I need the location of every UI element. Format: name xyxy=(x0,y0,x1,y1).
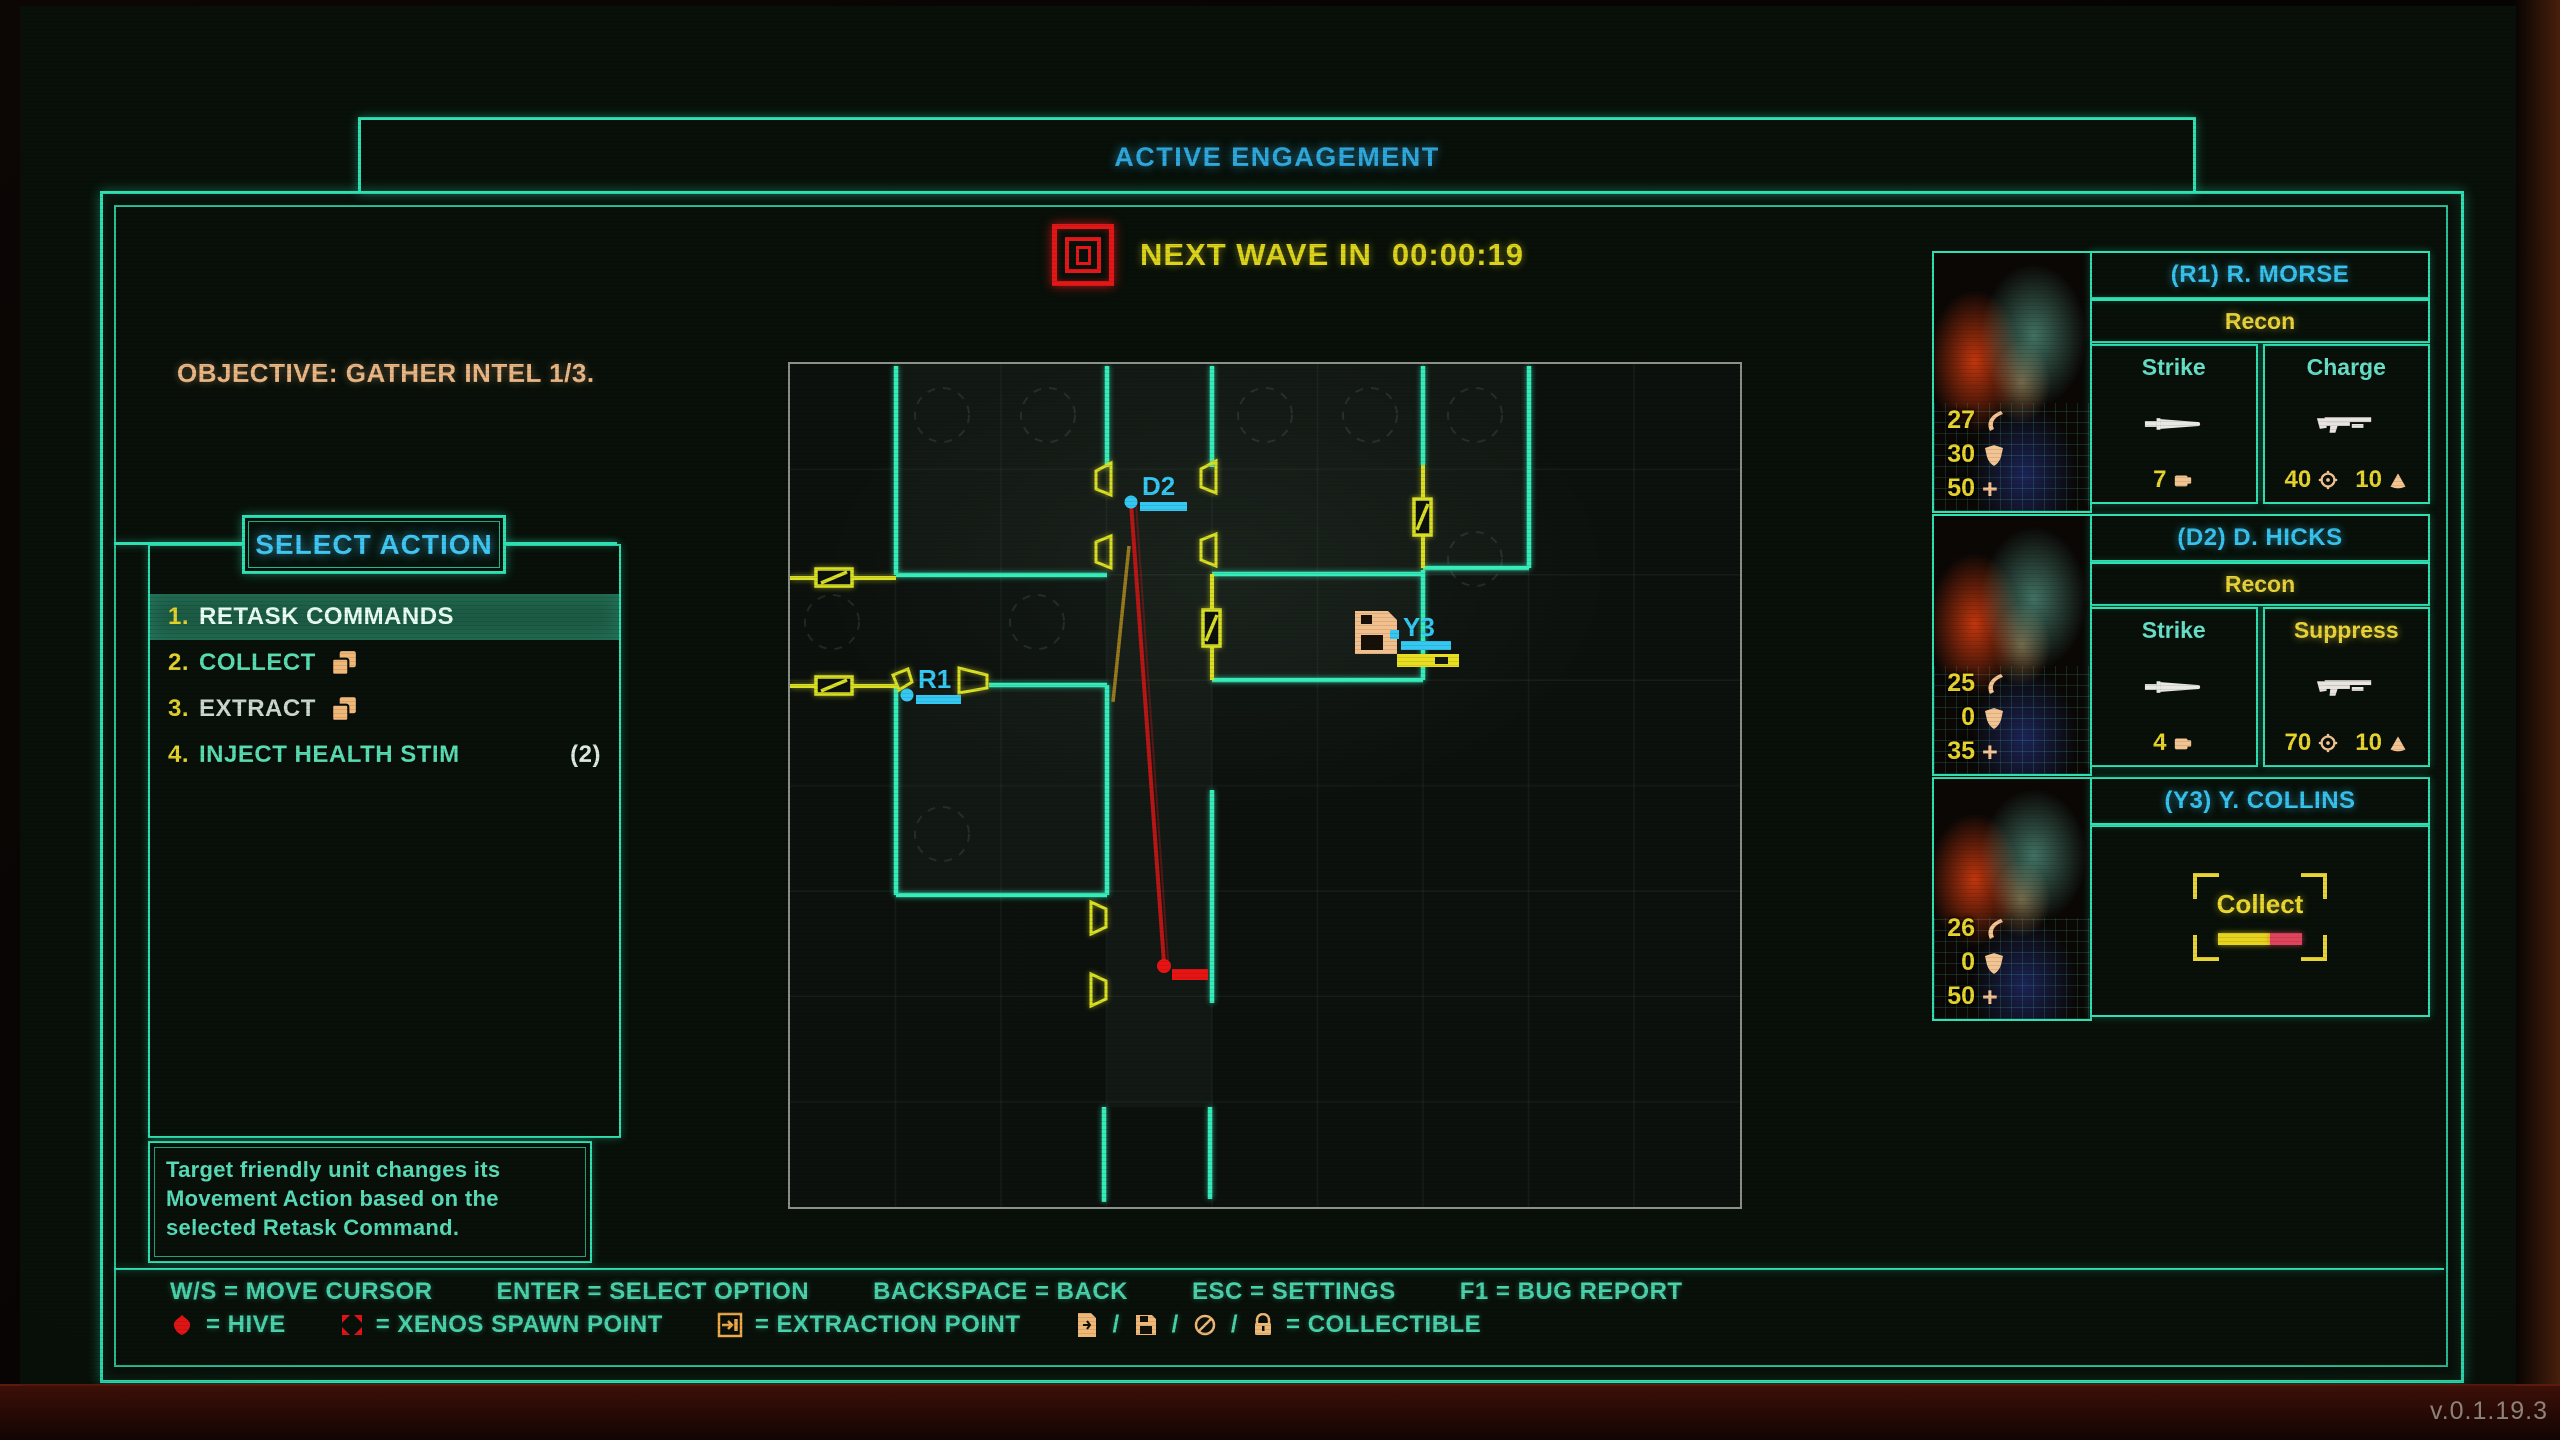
unit-portrait: 26 0 50+ xyxy=(1932,777,2092,1021)
threat-bar xyxy=(1172,969,1208,980)
stat-health: 50+ xyxy=(1939,982,2006,1011)
menu-item-number: 1. xyxy=(168,603,189,631)
melee-icon xyxy=(2172,733,2194,753)
collect-progress-bar xyxy=(2218,933,2302,945)
separator: / xyxy=(1231,1311,1238,1339)
collectible-squares-icon xyxy=(330,695,358,723)
wave-timer: 00:00:19 xyxy=(1392,237,1524,273)
unit-portrait: 25 0 35+ xyxy=(1932,514,2092,776)
action-strike[interactable]: Strike 4 xyxy=(2090,607,2258,767)
legend-xenos-spawn: = XENOS SPAWN POINT xyxy=(340,1311,663,1339)
menu-header-label: SELECT ACTION xyxy=(255,529,493,561)
accuracy-cost: 40 xyxy=(2285,466,2340,494)
shield-icon xyxy=(1982,443,2006,467)
collect-label: Collect xyxy=(2193,889,2327,920)
menu-item-inject-health-stim[interactable]: 4. INJECT HEALTH STIM (2) xyxy=(150,732,619,778)
title-tab: ACTIVE ENGAGEMENT xyxy=(358,117,2196,194)
menu-item-extract[interactable]: 3. EXTRACT xyxy=(150,686,619,732)
page-title: ACTIVE ENGAGEMENT xyxy=(1114,142,1440,173)
unit-portrait: 27 30 50+ xyxy=(1932,251,2092,513)
claw-icon xyxy=(1982,409,2006,433)
stat-armor: 30 xyxy=(1939,440,2006,469)
ammo-cost: 10 xyxy=(2355,729,2408,757)
unit-card-r1: 27 30 50+ (R1) R. MORSE Recon Strike 7 xyxy=(1932,251,2430,509)
hint-settings: ESC = SETTINGS xyxy=(1192,1278,1396,1306)
stat-armor: 0 xyxy=(1939,703,2006,732)
map-canvas: D2 R1 Y3 xyxy=(790,364,1740,1207)
hint-select-option: ENTER = SELECT OPTION xyxy=(497,1278,810,1306)
shield-icon xyxy=(1982,706,2006,730)
unit-class: Recon xyxy=(2090,562,2430,606)
unit-name: (Y3) Y. COLLINS xyxy=(2090,777,2430,825)
hint-back: BACKSPACE = BACK xyxy=(873,1278,1128,1306)
unit-name: (D2) D. HICKS xyxy=(2090,514,2430,562)
bracket-corner-icon xyxy=(2193,935,2219,961)
stat-kills: 27 xyxy=(1939,406,2006,435)
menu-item-label: EXTRACT xyxy=(199,695,316,723)
wave-alert-icon xyxy=(1052,224,1114,286)
action-suppress[interactable]: Suppress 70 10 xyxy=(2263,607,2431,767)
svg-text:Y3: Y3 xyxy=(1403,612,1435,642)
threat-marker xyxy=(1157,959,1171,973)
health-icon: + xyxy=(1982,479,1998,499)
svg-text:D2: D2 xyxy=(1142,471,1175,501)
melee-icon xyxy=(2172,470,2194,490)
accuracy-cost: 70 xyxy=(2285,729,2340,757)
keyboard-hints: W/S = MOVE CURSOR ENTER = SELECT OPTION … xyxy=(170,1278,1683,1306)
separator: / xyxy=(1113,1311,1120,1339)
unit-card-y3: 26 0 50+ (Y3) Y. COLLINS Collect xyxy=(1932,777,2430,1017)
claw-icon xyxy=(1982,672,2006,696)
action-description-text: Target friendly unit changes its Movemen… xyxy=(150,1143,590,1254)
knife-icon xyxy=(2143,412,2205,436)
menu-item-label: RETASK COMMANDS xyxy=(199,603,454,631)
map-legend: = HIVE = XENOS SPAWN POINT = EXTRACTION … xyxy=(170,1311,1481,1339)
action-strike[interactable]: Strike 7 xyxy=(2090,344,2258,504)
svg-text:R1: R1 xyxy=(918,664,951,694)
objective-text: OBJECTIVE: GATHER INTEL 1/3. xyxy=(177,358,595,389)
wave-countdown: NEXT WAVE IN 00:00:19 xyxy=(1052,224,1524,286)
unit-class: Recon xyxy=(2090,299,2430,343)
shotgun-icon xyxy=(2315,412,2377,436)
stat-kills: 25 xyxy=(1939,669,2006,698)
bracket-corner-icon xyxy=(2301,935,2327,961)
stat-health: 50+ xyxy=(1939,474,2006,503)
menu-item-count: (2) xyxy=(570,741,601,769)
menu-item-number: 4. xyxy=(168,741,189,769)
monitor-bezel-right xyxy=(2514,0,2560,1440)
extraction-icon xyxy=(717,1312,743,1338)
menu-header: SELECT ACTION xyxy=(242,515,506,574)
shotgun-icon xyxy=(2315,675,2377,699)
hint-move-cursor: W/S = MOVE CURSOR xyxy=(170,1278,433,1306)
melee-cost: 4 xyxy=(2153,729,2194,757)
shield-icon xyxy=(1982,951,2006,975)
unit-name: (R1) R. MORSE xyxy=(2090,251,2430,299)
ammo-icon xyxy=(2388,470,2408,490)
lock-icon xyxy=(1252,1313,1274,1337)
tactical-map: D2 R1 Y3 xyxy=(788,362,1742,1209)
collectible-squares-icon xyxy=(330,649,358,677)
unit-status-box: Collect xyxy=(2090,825,2430,1017)
separator: / xyxy=(1172,1311,1179,1339)
stat-kills: 26 xyxy=(1939,914,2006,943)
action-menu: 1. RETASK COMMANDS 2. COLLECT 3. EXTRACT xyxy=(148,544,621,1138)
menu-item-retask-commands[interactable]: 1. RETASK COMMANDS xyxy=(150,594,619,640)
crt-monitor: ACTIVE ENGAGEMENT NEXT WAVE IN 00:00:19 … xyxy=(0,0,2560,1440)
action-description-box: Target friendly unit changes its Movemen… xyxy=(148,1141,592,1263)
document-icon xyxy=(1075,1312,1099,1338)
menu-item-number: 3. xyxy=(168,695,189,723)
menu-item-collect[interactable]: 2. COLLECT xyxy=(150,640,619,686)
version-label: v.0.1.19.3 xyxy=(2430,1397,2548,1426)
accuracy-icon xyxy=(2317,469,2339,491)
melee-cost: 7 xyxy=(2153,466,2194,494)
legend-collectible: / / / = COLLECTIBLE xyxy=(1075,1311,1482,1339)
stat-armor: 0 xyxy=(1939,948,2006,977)
claw-icon xyxy=(1982,917,2006,941)
wave-label: NEXT WAVE IN xyxy=(1140,237,1372,273)
monitor-bezel-bottom xyxy=(0,1384,2560,1440)
game-screen: ACTIVE ENGAGEMENT NEXT WAVE IN 00:00:19 … xyxy=(20,6,2516,1386)
xenos-spawn-icon xyxy=(340,1313,364,1337)
health-icon: + xyxy=(1982,742,1998,762)
disc-icon xyxy=(1193,1313,1217,1337)
menu-item-label: COLLECT xyxy=(199,649,316,677)
menu-item-number: 2. xyxy=(168,649,189,677)
collect-progress-button[interactable]: Collect xyxy=(2193,873,2327,961)
floppy-icon xyxy=(1134,1313,1158,1337)
action-charge[interactable]: Charge 40 10 xyxy=(2263,344,2431,504)
ammo-cost: 10 xyxy=(2355,466,2408,494)
knife-icon xyxy=(2143,675,2205,699)
legend-extraction: = EXTRACTION POINT xyxy=(717,1311,1021,1339)
accuracy-icon xyxy=(2317,732,2339,754)
unit-card-d2: 25 0 35+ (D2) D. HICKS Recon Strike 4 xyxy=(1932,514,2430,772)
health-icon: + xyxy=(1982,987,1998,1007)
stat-health: 35+ xyxy=(1939,737,2006,766)
ammo-icon xyxy=(2388,733,2408,753)
hints-separator xyxy=(114,1268,2444,1270)
legend-hive: = HIVE xyxy=(170,1311,286,1339)
hint-bug-report: F1 = BUG REPORT xyxy=(1460,1278,1683,1306)
hive-icon xyxy=(170,1313,194,1337)
menu-item-label: INJECT HEALTH STIM xyxy=(199,741,460,769)
